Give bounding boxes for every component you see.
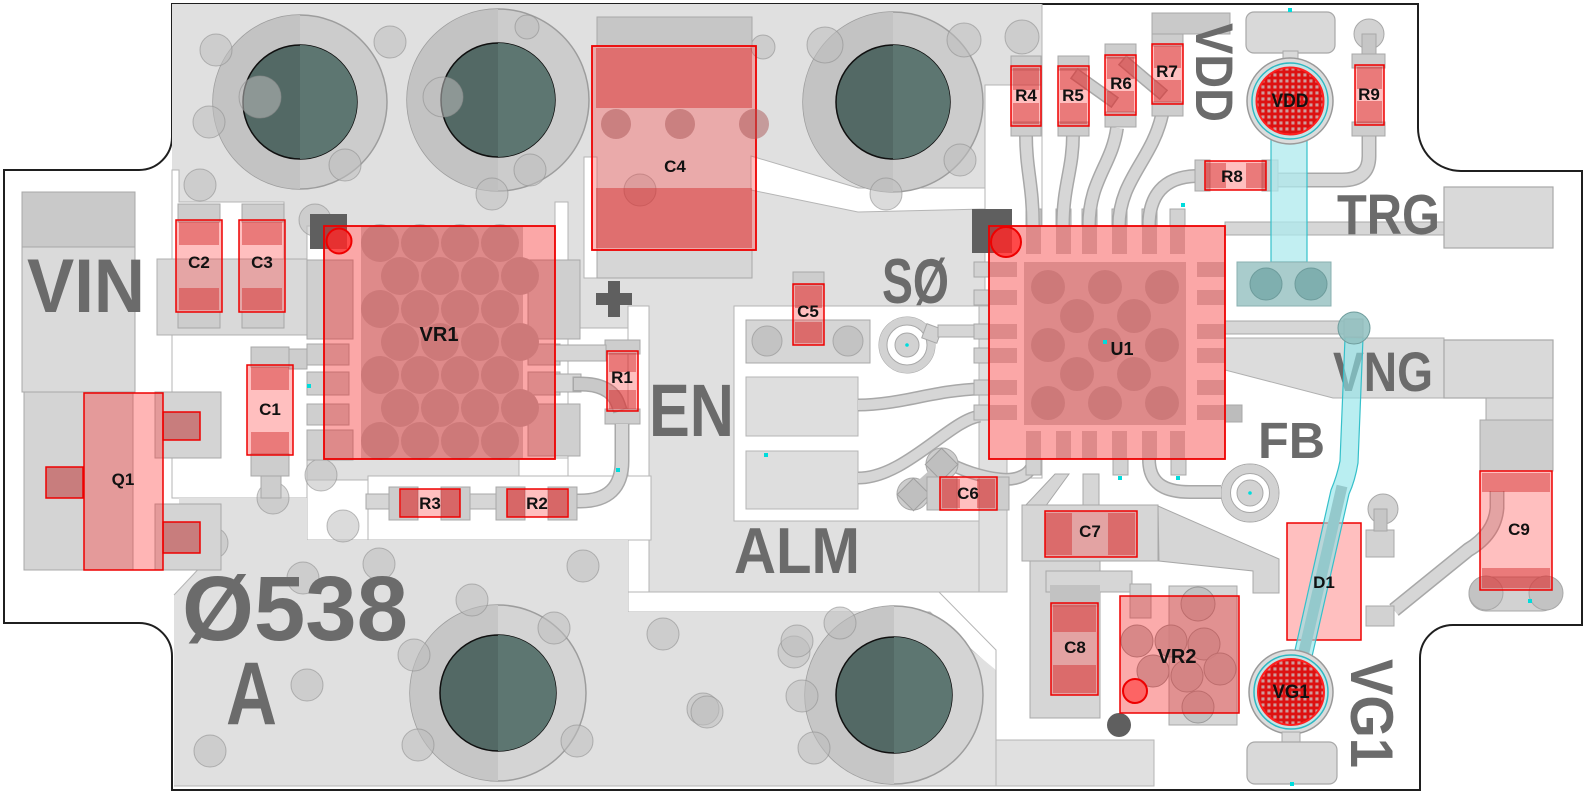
svg-text:C1: C1 [259, 400, 281, 419]
svg-text:U1: U1 [1110, 339, 1133, 359]
svg-text:EN: EN [649, 369, 734, 452]
svg-text:Ø538: Ø538 [182, 558, 408, 660]
svg-text:C2: C2 [188, 253, 210, 272]
svg-text:R3: R3 [419, 494, 441, 513]
svg-text:VG1: VG1 [1338, 659, 1405, 768]
svg-text:A: A [226, 643, 277, 743]
svg-text:C5: C5 [797, 302, 819, 321]
svg-text:C4: C4 [664, 157, 686, 176]
svg-text:C3: C3 [251, 253, 273, 272]
svg-text:C9: C9 [1508, 520, 1530, 539]
svg-text:D1: D1 [1313, 573, 1335, 592]
svg-text:VR2: VR2 [1158, 646, 1197, 668]
svg-text:R1: R1 [611, 368, 633, 387]
svg-text:C7: C7 [1079, 522, 1101, 541]
svg-text:R8: R8 [1221, 167, 1243, 186]
svg-text:R9: R9 [1358, 85, 1380, 104]
svg-text:R2: R2 [526, 494, 548, 513]
svg-text:VIN: VIN [27, 244, 145, 329]
svg-text:SØ: SØ [882, 247, 949, 317]
svg-text:R4: R4 [1015, 86, 1037, 105]
svg-text:FB: FB [1258, 412, 1325, 469]
svg-text:R6: R6 [1110, 74, 1132, 93]
svg-text:ALM: ALM [734, 514, 860, 587]
svg-text:VDD: VDD [1272, 91, 1309, 112]
svg-text:VG1: VG1 [1273, 682, 1310, 703]
svg-text:VR1: VR1 [420, 324, 459, 346]
svg-text:C6: C6 [957, 484, 979, 503]
svg-text:R5: R5 [1062, 86, 1084, 105]
svg-text:VDD: VDD [1184, 23, 1243, 122]
svg-text:C8: C8 [1064, 638, 1086, 657]
svg-text:R7: R7 [1156, 62, 1178, 81]
svg-text:TRG: TRG [1337, 183, 1440, 247]
svg-text:Q1: Q1 [112, 470, 135, 489]
